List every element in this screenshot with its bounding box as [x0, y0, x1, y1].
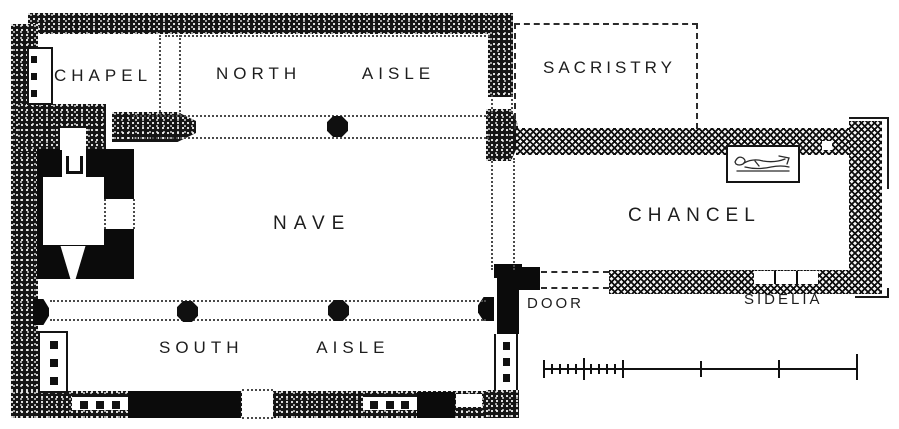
annotation-door: DOOR	[527, 295, 584, 312]
window-pane	[50, 341, 58, 349]
line-chancel-arch-west	[491, 158, 493, 270]
room-label-chapel: CHAPEL	[54, 66, 152, 86]
line-north-arcade-upper	[133, 115, 489, 117]
room-label-nave: NAVE	[273, 213, 351, 235]
sedilia-recess	[754, 271, 818, 284]
scale-major-tick	[622, 360, 624, 378]
window-mullion	[112, 401, 120, 409]
room-label-sacristy: SACRISTRY	[543, 58, 676, 78]
scale-minor-tick	[559, 364, 561, 374]
scale-major-tick	[583, 358, 585, 380]
scale-minor-tick	[606, 364, 608, 374]
line-priest-door-upper	[541, 271, 609, 273]
scale-minor-tick	[551, 364, 553, 374]
window-pane	[503, 342, 510, 350]
window-mullion	[370, 401, 378, 409]
pillar-north-arcade	[327, 116, 348, 137]
scale-major-tick	[856, 354, 858, 380]
tomb-recess	[726, 145, 800, 183]
window-pane	[503, 358, 510, 366]
window-south-aisle-west	[38, 331, 68, 393]
line-chapel-arch-west	[159, 35, 161, 115]
chancel-wall-notch	[822, 141, 832, 150]
church-floor-plan: CHAPEL NORTH AISLE SACRISTRY NAVE CHANCE…	[0, 0, 899, 429]
window-south-2	[363, 395, 417, 410]
pillar-south-arcade-west	[177, 301, 198, 322]
sedilia-divider	[796, 271, 798, 284]
door-gap-south	[242, 389, 273, 419]
wall-north	[28, 13, 510, 34]
respond-south-arcade-west	[33, 299, 49, 325]
line-north-aisle-inner	[165, 35, 490, 37]
door-jamb-icon	[66, 156, 83, 174]
window-pane	[31, 73, 37, 80]
scale-minor-tick	[590, 364, 592, 374]
window-pane	[50, 377, 58, 385]
line-chapel-arch-east	[179, 35, 181, 115]
wall-south-black-segment	[417, 392, 455, 418]
scale-bar	[535, 348, 865, 388]
tower-interior	[43, 177, 104, 245]
scale-major-tick	[700, 361, 702, 377]
line-south-arcade-lower	[50, 319, 486, 321]
window-pane	[31, 56, 37, 63]
window-pane	[503, 374, 510, 382]
scale-minor-tick	[567, 364, 569, 374]
wall-chancel-east	[849, 121, 882, 294]
scale-minor-tick	[575, 364, 577, 374]
tower-north-door-gap	[60, 128, 86, 150]
window-mullion	[96, 401, 104, 409]
pier-chancel-door-west	[513, 267, 540, 290]
sedilia-divider	[774, 271, 776, 284]
wall-chancel-north	[516, 128, 856, 155]
scale-minor-tick	[598, 364, 600, 374]
annotation-sedilia: SIDELIA	[744, 291, 823, 308]
window-south-1	[72, 395, 128, 410]
scale-major-tick	[543, 360, 545, 378]
window-pane	[31, 90, 37, 97]
room-label-south-aisle: SOUTH AISLE	[159, 338, 389, 358]
window-chapel-west	[27, 47, 53, 105]
tower-north-doorway	[62, 149, 86, 178]
line-sacristy-door-east	[511, 95, 513, 113]
window-mullion	[386, 401, 394, 409]
recess-south-wall	[456, 394, 482, 407]
line-priest-door-lower	[541, 287, 609, 289]
window-mullion	[401, 401, 409, 409]
room-label-north-aisle: NORTH AISLE	[216, 64, 435, 84]
effigy-sketch-icon	[731, 150, 795, 178]
wall-south-black-segment	[128, 391, 240, 418]
scale-major-tick	[778, 360, 780, 378]
wall-south-aisle-southeast-corner	[486, 390, 519, 418]
line-north-arcade-lower	[133, 137, 489, 139]
line-sacristy-door-west	[491, 95, 493, 113]
line-chancel-arch-east	[513, 158, 515, 270]
window-mullion	[80, 401, 88, 409]
pillar-south-arcade-east	[328, 300, 349, 321]
scale-minor-tick	[614, 364, 616, 374]
tower-east-arch-opening	[104, 199, 135, 229]
window-south-aisle-east	[494, 334, 518, 390]
room-label-chancel: CHANCEL	[628, 205, 761, 227]
line-south-arcade-upper	[50, 300, 486, 302]
wall-north-aisle-east	[488, 13, 513, 97]
window-pane	[50, 359, 58, 367]
